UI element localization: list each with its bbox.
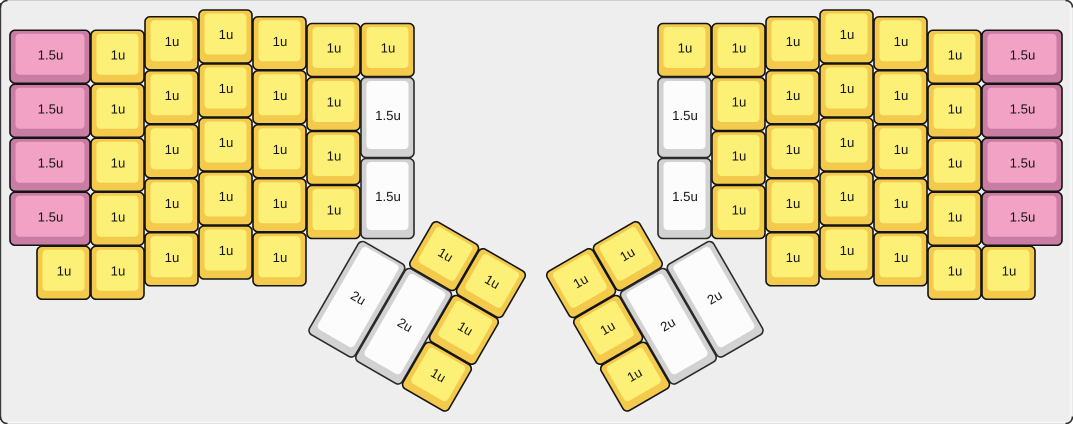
svg-text:1u: 1u xyxy=(165,250,180,265)
svg-text:1u: 1u xyxy=(1002,263,1017,278)
svg-text:1u: 1u xyxy=(840,135,855,150)
svg-text:1u: 1u xyxy=(948,101,963,116)
svg-text:1u: 1u xyxy=(219,27,234,42)
svg-text:1.5u: 1.5u xyxy=(38,155,64,170)
svg-text:1u: 1u xyxy=(894,34,909,49)
svg-text:1.5u: 1.5u xyxy=(1010,155,1036,170)
svg-text:1u: 1u xyxy=(948,263,963,278)
svg-text:1u: 1u xyxy=(948,155,963,170)
svg-text:1u: 1u xyxy=(840,243,855,258)
svg-text:1u: 1u xyxy=(219,189,234,204)
svg-text:1.5u: 1.5u xyxy=(672,189,698,204)
svg-text:1u: 1u xyxy=(219,81,234,96)
svg-text:1u: 1u xyxy=(111,209,126,224)
svg-text:1.5u: 1.5u xyxy=(38,209,64,224)
svg-text:1u: 1u xyxy=(894,142,909,157)
svg-text:1.5u: 1.5u xyxy=(375,108,401,123)
svg-text:1u: 1u xyxy=(219,135,234,150)
svg-text:1u: 1u xyxy=(678,41,693,56)
svg-text:1u: 1u xyxy=(219,243,234,258)
svg-text:1u: 1u xyxy=(111,47,126,62)
svg-text:1u: 1u xyxy=(111,155,126,170)
svg-text:1u: 1u xyxy=(894,250,909,265)
svg-text:1.5u: 1.5u xyxy=(1010,101,1036,116)
svg-text:1.5u: 1.5u xyxy=(672,108,698,123)
svg-text:1u: 1u xyxy=(165,34,180,49)
svg-text:1u: 1u xyxy=(273,88,288,103)
svg-text:1u: 1u xyxy=(327,95,342,110)
svg-text:1u: 1u xyxy=(273,250,288,265)
svg-text:1u: 1u xyxy=(732,203,747,218)
svg-text:1.5u: 1.5u xyxy=(375,189,401,204)
svg-text:1.5u: 1.5u xyxy=(1010,209,1036,224)
svg-text:1u: 1u xyxy=(786,196,801,211)
svg-text:1u: 1u xyxy=(732,41,747,56)
svg-text:1u: 1u xyxy=(840,189,855,204)
svg-text:1u: 1u xyxy=(111,101,126,116)
svg-text:1u: 1u xyxy=(732,95,747,110)
svg-text:1u: 1u xyxy=(786,34,801,49)
svg-text:1u: 1u xyxy=(786,88,801,103)
svg-text:1.5u: 1.5u xyxy=(38,101,64,116)
svg-text:1u: 1u xyxy=(948,209,963,224)
svg-text:1u: 1u xyxy=(165,88,180,103)
svg-text:1u: 1u xyxy=(786,142,801,157)
svg-text:1.5u: 1.5u xyxy=(1010,47,1036,62)
svg-text:1u: 1u xyxy=(327,203,342,218)
svg-text:1u: 1u xyxy=(840,81,855,96)
svg-text:1u: 1u xyxy=(894,196,909,211)
svg-text:1u: 1u xyxy=(732,149,747,164)
svg-text:1u: 1u xyxy=(57,263,72,278)
svg-text:1.5u: 1.5u xyxy=(38,47,64,62)
svg-text:1u: 1u xyxy=(840,27,855,42)
svg-text:1u: 1u xyxy=(786,250,801,265)
svg-text:1u: 1u xyxy=(273,142,288,157)
svg-text:1u: 1u xyxy=(273,34,288,49)
svg-text:1u: 1u xyxy=(894,88,909,103)
svg-text:1u: 1u xyxy=(165,142,180,157)
svg-text:1u: 1u xyxy=(327,149,342,164)
svg-text:1u: 1u xyxy=(111,263,126,278)
svg-text:1u: 1u xyxy=(273,196,288,211)
svg-text:1u: 1u xyxy=(381,41,396,56)
svg-text:1u: 1u xyxy=(948,47,963,62)
svg-text:1u: 1u xyxy=(327,41,342,56)
svg-text:1u: 1u xyxy=(165,196,180,211)
